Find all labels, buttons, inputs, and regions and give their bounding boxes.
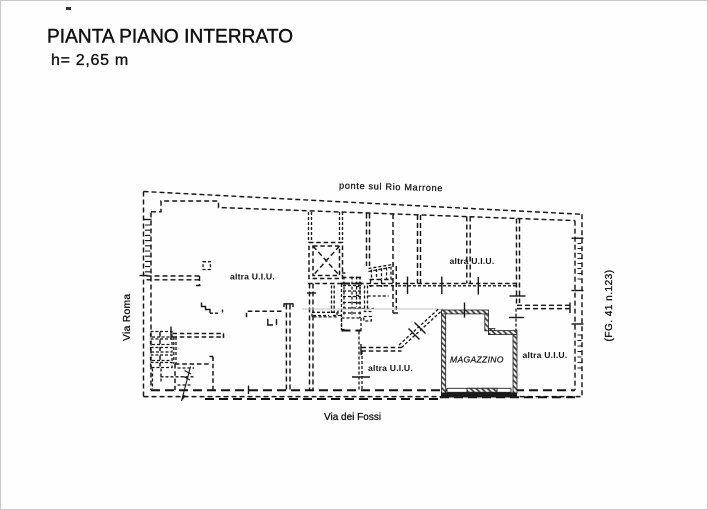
svg-text:Via Roma: Via Roma: [122, 294, 133, 341]
svg-text:PIANTA PIANO INTERRATO: PIANTA PIANO INTERRATO: [47, 27, 293, 48]
svg-text:Via dei Fossi: Via dei Fossi: [324, 412, 381, 423]
svg-text:altra U.I.U.: altra U.I.U.: [230, 272, 275, 282]
svg-text:(FG. 41 n.123): (FG. 41 n.123): [604, 269, 615, 341]
svg-text:h= 2,65 m: h= 2,65 m: [51, 52, 129, 69]
svg-text:altra U.I.U.: altra U.I.U.: [523, 350, 568, 360]
svg-text:altra U.I.U.: altra U.I.U.: [450, 256, 495, 266]
svg-text:MAGAZZINO: MAGAZZINO: [450, 355, 504, 365]
svg-text:altra U.I.U.: altra U.I.U.: [368, 363, 413, 373]
svg-text:ponte sul Rio Marrone: ponte sul Rio Marrone: [339, 181, 443, 194]
